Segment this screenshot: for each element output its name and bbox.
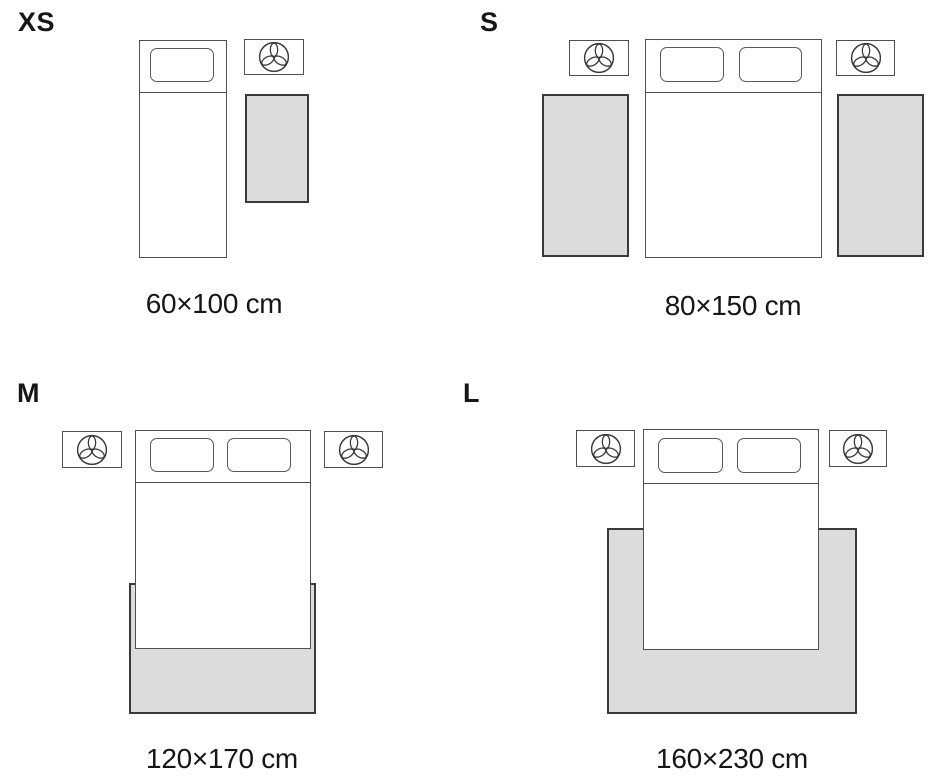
nightstand-left [62,431,122,468]
nightstand-right [829,430,887,467]
rug-xs [245,94,309,203]
plant-top-view-icon [258,41,290,73]
pillow [739,47,802,82]
pillow [658,438,723,473]
section-m: M 120×170 cm [0,370,470,780]
double-bed [645,39,822,258]
size-label-l: L [463,380,480,407]
plant-top-view-icon [583,42,615,74]
pillow [737,438,801,473]
plant-top-view-icon [338,434,370,466]
nightstand-right [836,40,895,76]
caption-s: 80×150 cm [665,291,802,322]
nightstand-right [324,431,383,468]
caption-l: 160×230 cm [656,744,808,775]
pillow [227,438,291,472]
double-bed [643,429,819,650]
rug-size-guide: XS 60×100 cm S [0,0,940,780]
pillow [150,438,214,472]
nightstand-left [576,430,635,467]
rug-s-right [837,94,924,257]
size-label-m: M [17,380,40,407]
single-bed [139,40,227,258]
double-bed [135,430,311,649]
bed-headboard-divider [646,92,821,93]
plant-top-view-icon [76,434,108,466]
nightstand-left [569,40,629,76]
pillow [150,48,214,82]
caption-m: 120×170 cm [146,744,298,775]
size-label-s: S [480,9,499,36]
bed-headboard-divider [136,482,310,483]
section-s: S 80×150 cm [470,0,940,390]
plant-top-view-icon [590,433,622,465]
pillow [660,47,724,82]
rug-s-left [542,94,629,257]
bed-headboard-divider [140,92,226,93]
bed-headboard-divider [644,483,818,484]
plant-top-view-icon [842,433,874,465]
section-xs: XS 60×100 cm [0,0,470,390]
size-label-xs: XS [18,9,55,36]
nightstand [244,39,304,75]
caption-xs: 60×100 cm [146,289,283,320]
plant-top-view-icon [850,42,882,74]
section-l: L 160×230 cm [470,370,940,780]
